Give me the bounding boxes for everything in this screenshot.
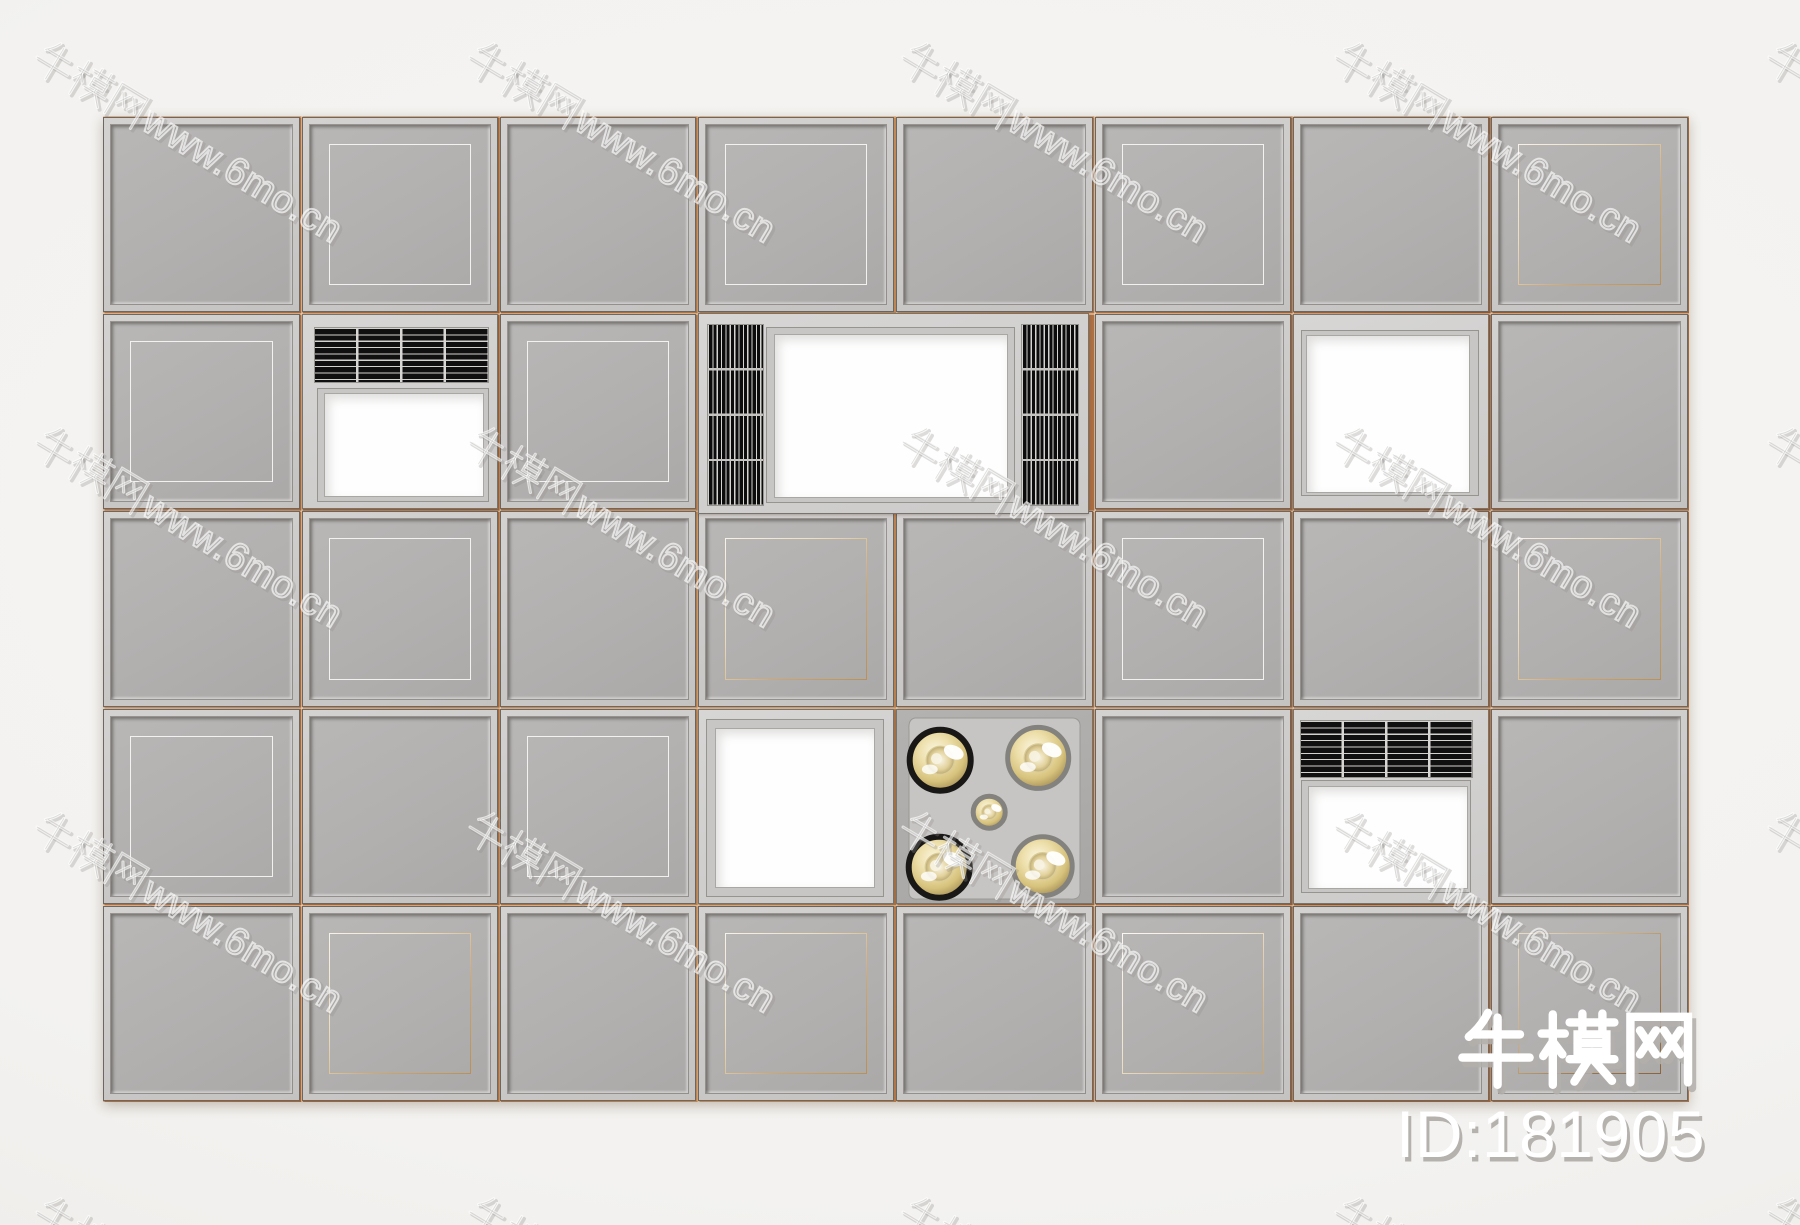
svg-text:ID:181905: ID:181905 (1396, 1097, 1705, 1171)
svg-text:ID:181905: ID:181905 (1399, 1102, 1708, 1176)
